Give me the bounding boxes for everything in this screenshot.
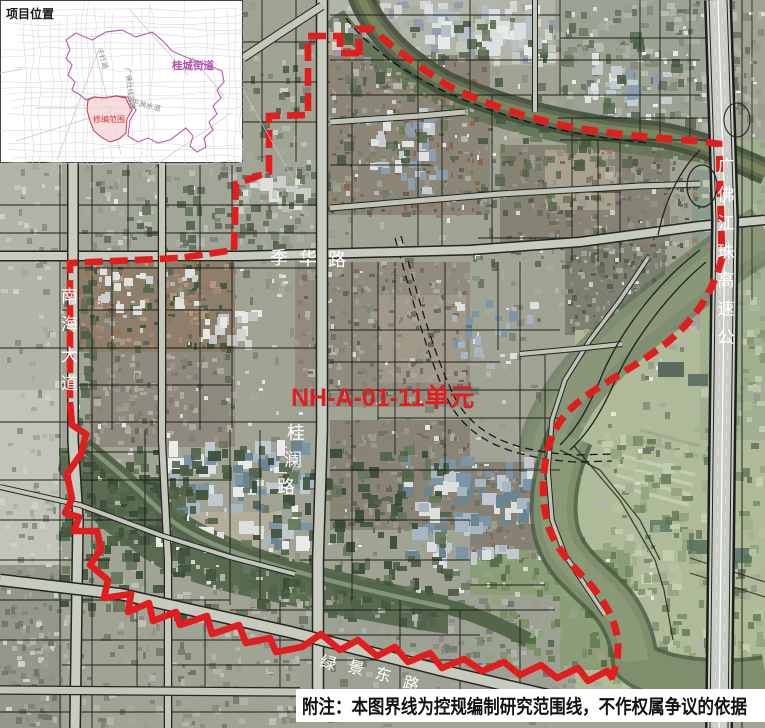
svg-text:速: 速 (718, 300, 735, 319)
svg-text:海: 海 (61, 315, 78, 334)
svg-text:季: 季 (270, 248, 288, 268)
svg-text:珠: 珠 (718, 243, 735, 262)
svg-text:桂: 桂 (287, 423, 305, 443)
svg-text:公: 公 (718, 328, 735, 347)
svg-text:项目位置: 项目位置 (6, 6, 54, 21)
svg-text:佛: 佛 (718, 186, 735, 205)
svg-text:澜: 澜 (284, 450, 302, 470)
svg-text:道: 道 (61, 374, 78, 393)
svg-text:华: 华 (299, 249, 317, 269)
svg-text:路: 路 (328, 250, 346, 270)
svg-text:NH-A-01-11单元: NH-A-01-11单元 (291, 384, 474, 412)
svg-text:路: 路 (277, 477, 295, 497)
svg-text:南: 南 (61, 287, 78, 306)
svg-text:江: 江 (718, 214, 735, 233)
svg-text:附注：本图界线为控规编制研究范围线，不作权属争议的依据: 附注：本图界线为控规编制研究范围线，不作权属争议的依据 (302, 695, 747, 718)
svg-text:大: 大 (61, 346, 78, 365)
svg-text:桂城街道: 桂城街道 (171, 59, 214, 72)
svg-text:修编范围: 修编范围 (93, 114, 125, 124)
svg-text:高: 高 (718, 271, 735, 290)
svg-text:广: 广 (718, 157, 735, 176)
